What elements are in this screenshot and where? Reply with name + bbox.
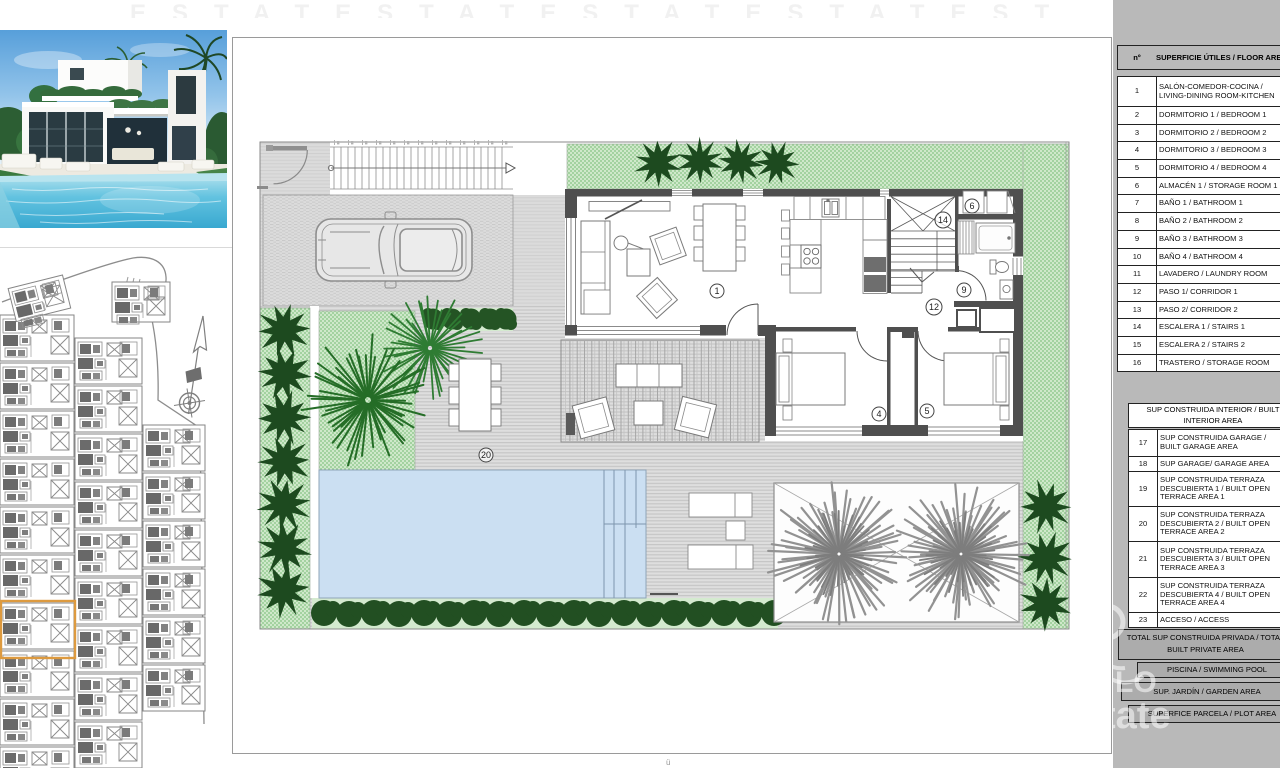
svg-text:tate: tate [1113, 695, 1171, 737]
svg-text:20: 20 [481, 450, 491, 460]
svg-text:1: 1 [714, 286, 719, 296]
svg-text:5: 5 [924, 406, 929, 416]
svg-text:4: 4 [876, 409, 881, 419]
svg-text:9: 9 [961, 285, 966, 295]
svg-text:12: 12 [929, 302, 939, 312]
svg-text:14: 14 [938, 215, 948, 225]
svg-text:6: 6 [969, 201, 974, 211]
